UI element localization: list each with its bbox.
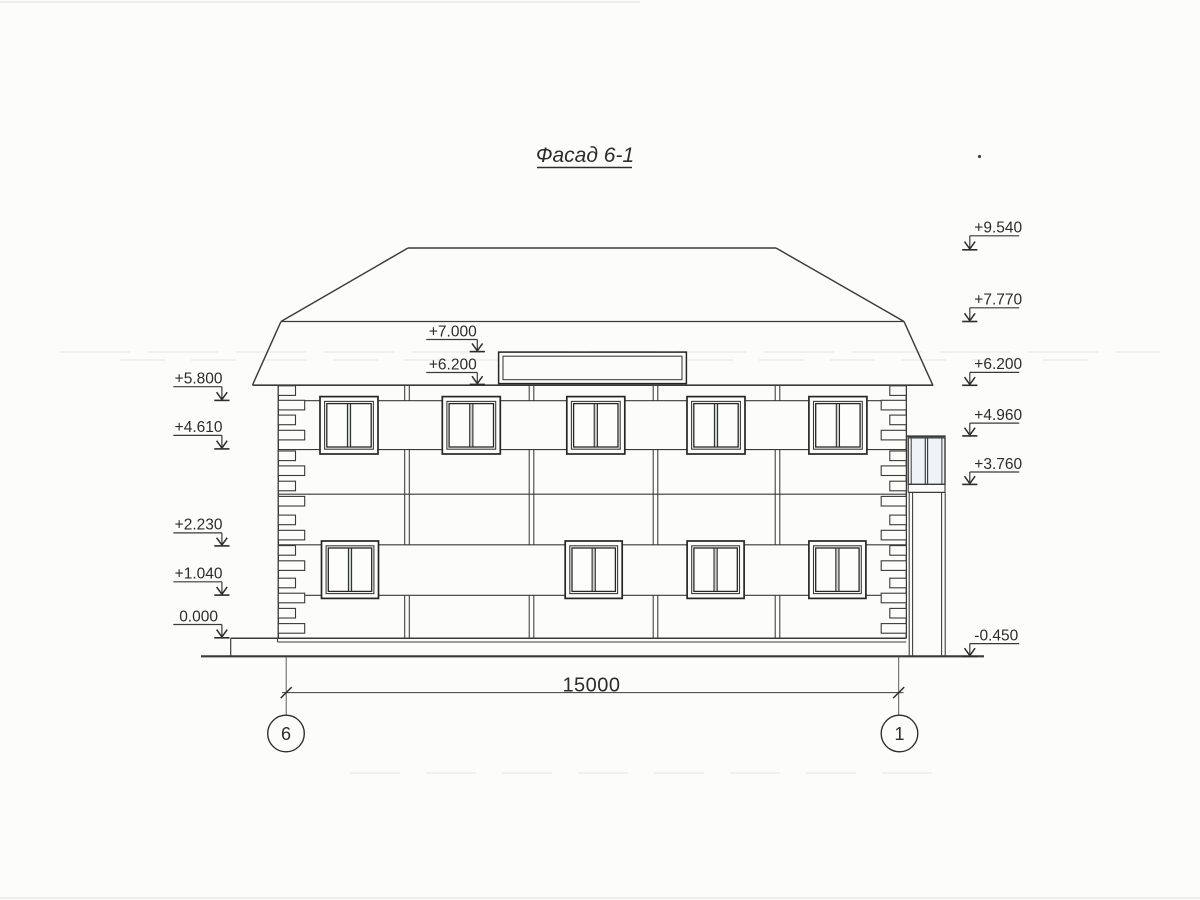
svg-text:+4.610: +4.610 [175, 419, 223, 436]
svg-text:+7.000: +7.000 [429, 323, 477, 340]
svg-text:Фасад 6-1: Фасад 6-1 [536, 144, 634, 167]
svg-text:+4.960: +4.960 [974, 407, 1022, 424]
svg-text:+6.200: +6.200 [429, 356, 477, 373]
svg-text:1: 1 [894, 724, 904, 744]
svg-text:+1.040: +1.040 [175, 566, 223, 583]
svg-text:+6.200: +6.200 [974, 356, 1022, 373]
svg-text:6: 6 [281, 724, 291, 744]
svg-text:0.000: 0.000 [179, 608, 218, 625]
svg-text:-0.450: -0.450 [974, 627, 1018, 644]
svg-text:+2.230: +2.230 [175, 517, 223, 534]
svg-text:15000: 15000 [562, 674, 620, 696]
svg-text:+9.540: +9.540 [974, 220, 1022, 237]
svg-text:+7.770: +7.770 [974, 292, 1022, 309]
svg-text:+5.800: +5.800 [175, 371, 223, 388]
svg-text:+3.760: +3.760 [974, 456, 1022, 473]
